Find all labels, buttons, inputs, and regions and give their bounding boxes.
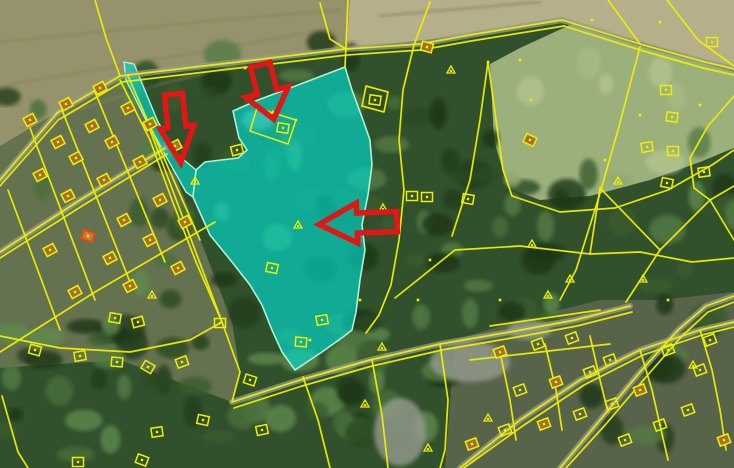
- boundary-marker-dot: [604, 159, 607, 162]
- boundary-marker-dot: [591, 19, 594, 22]
- boundary-marker-dot: [530, 99, 533, 102]
- tree-canopy-blob: [381, 215, 396, 231]
- tree-canopy-blob: [117, 374, 131, 399]
- building-dot: [703, 171, 706, 174]
- building-dot: [671, 116, 674, 119]
- tree-canopy-blob: [576, 47, 600, 79]
- building-dot: [300, 341, 303, 344]
- tree-symbol-dot: [364, 404, 366, 406]
- tree-canopy-blob: [548, 179, 586, 210]
- tree-symbol-dot: [450, 70, 452, 72]
- tree-canopy-blob: [45, 376, 73, 406]
- tree-canopy-blob: [102, 316, 121, 335]
- tree-canopy-blob: [160, 290, 182, 309]
- tree-symbol-dot: [547, 295, 549, 297]
- tree-canopy-blob: [649, 57, 672, 88]
- tree-symbol-dot: [381, 347, 383, 349]
- building-dot: [666, 182, 669, 185]
- building-dot: [711, 41, 713, 43]
- tree-canopy-blob: [386, 96, 402, 110]
- tree-canopy-blob: [184, 396, 203, 428]
- tree-canopy-blob: [101, 425, 121, 453]
- tree-canopy-blob: [65, 410, 103, 431]
- boundary-marker-dot: [487, 61, 490, 64]
- tree-canopy-blob: [8, 408, 23, 421]
- tree-symbol-dot: [692, 365, 694, 367]
- boundary-marker-dot: [244, 67, 247, 70]
- tree-canopy-blob: [405, 255, 426, 268]
- tree-canopy-blob: [462, 298, 478, 328]
- map-viewport[interactable]: [0, 0, 734, 468]
- tree-canopy-blob: [464, 280, 493, 292]
- tree-canopy-blob: [450, 170, 486, 182]
- building-dot: [116, 361, 119, 364]
- boundary-marker-dot: [667, 299, 670, 302]
- building-dot: [114, 317, 117, 320]
- boundary-marker-dot: [417, 299, 420, 302]
- building-dot: [271, 267, 274, 270]
- boundary-marker-dot: [429, 259, 432, 262]
- tree-canopy-blob: [412, 304, 430, 330]
- building-dot: [282, 127, 285, 130]
- boundary-marker-dot: [499, 299, 502, 302]
- building-dot: [672, 150, 674, 152]
- boundary-marker-dot: [359, 299, 362, 302]
- building-dot: [665, 89, 667, 91]
- tree-canopy-blob: [374, 136, 409, 153]
- tree-canopy-blob: [580, 384, 604, 409]
- tree-canopy-blob: [517, 77, 545, 106]
- tree-canopy-blob: [498, 302, 525, 322]
- building-dot: [202, 419, 205, 422]
- tree-canopy-blob: [656, 294, 673, 314]
- tree-symbol-dot: [194, 181, 196, 183]
- building-dot: [219, 322, 221, 324]
- tree-symbol-dot: [487, 418, 489, 420]
- tree-symbol-dot: [151, 295, 153, 297]
- tree-canopy-blob: [430, 98, 447, 129]
- tree-symbol-dot: [297, 225, 299, 227]
- building-dot: [374, 99, 377, 102]
- boundary-marker-dot: [519, 59, 522, 62]
- tree-canopy-blob: [143, 371, 172, 389]
- tree-canopy-blob: [339, 382, 366, 405]
- boundary-marker-dot: [699, 104, 702, 107]
- building-dot: [156, 431, 159, 434]
- tree-canopy-blob: [422, 213, 453, 236]
- tree-canopy-blob: [247, 353, 284, 365]
- tree-canopy-blob: [2, 365, 21, 391]
- tree-symbol-dot: [427, 448, 429, 450]
- tree-symbol-dot: [617, 181, 619, 183]
- tree-canopy-blob: [402, 107, 429, 127]
- tree-canopy-blob: [227, 403, 256, 430]
- boundary-marker-dot: [295, 119, 298, 122]
- tree-canopy-blob: [17, 348, 36, 363]
- tree-canopy-blob: [211, 273, 237, 287]
- tree-canopy-blob: [201, 86, 217, 99]
- tree-canopy-blob: [228, 297, 260, 328]
- building-dot: [646, 146, 649, 149]
- building-dot: [321, 319, 324, 322]
- building-dot: [79, 355, 82, 358]
- building-dot: [426, 196, 428, 198]
- building-dot: [261, 429, 264, 432]
- tree-symbol-dot: [569, 279, 571, 281]
- tree-canopy-blob: [537, 211, 554, 242]
- boundary-marker-dot: [659, 21, 662, 24]
- building-dot: [411, 195, 413, 197]
- building-dot: [77, 461, 79, 463]
- tree-canopy-blob: [151, 208, 170, 229]
- boundary-marker-dot: [639, 114, 642, 117]
- tree-canopy-blob: [202, 430, 234, 443]
- tree-symbol-dot: [531, 244, 533, 246]
- tree-canopy-blob: [178, 377, 211, 396]
- building-symbol: [421, 41, 434, 53]
- clearing-patch: [374, 398, 426, 466]
- tree-canopy-blob: [129, 198, 149, 227]
- boundary-marker-dot: [309, 339, 312, 342]
- cadastral-map-canvas[interactable]: [0, 0, 734, 468]
- building-dot: [467, 198, 470, 201]
- tree-canopy-blob: [599, 74, 613, 95]
- tree-symbol-dot: [642, 279, 644, 281]
- tree-canopy-blob: [91, 368, 107, 389]
- tree-canopy-blob: [57, 447, 95, 462]
- tree-canopy-blob: [265, 405, 296, 432]
- tree-canopy-blob: [492, 216, 508, 237]
